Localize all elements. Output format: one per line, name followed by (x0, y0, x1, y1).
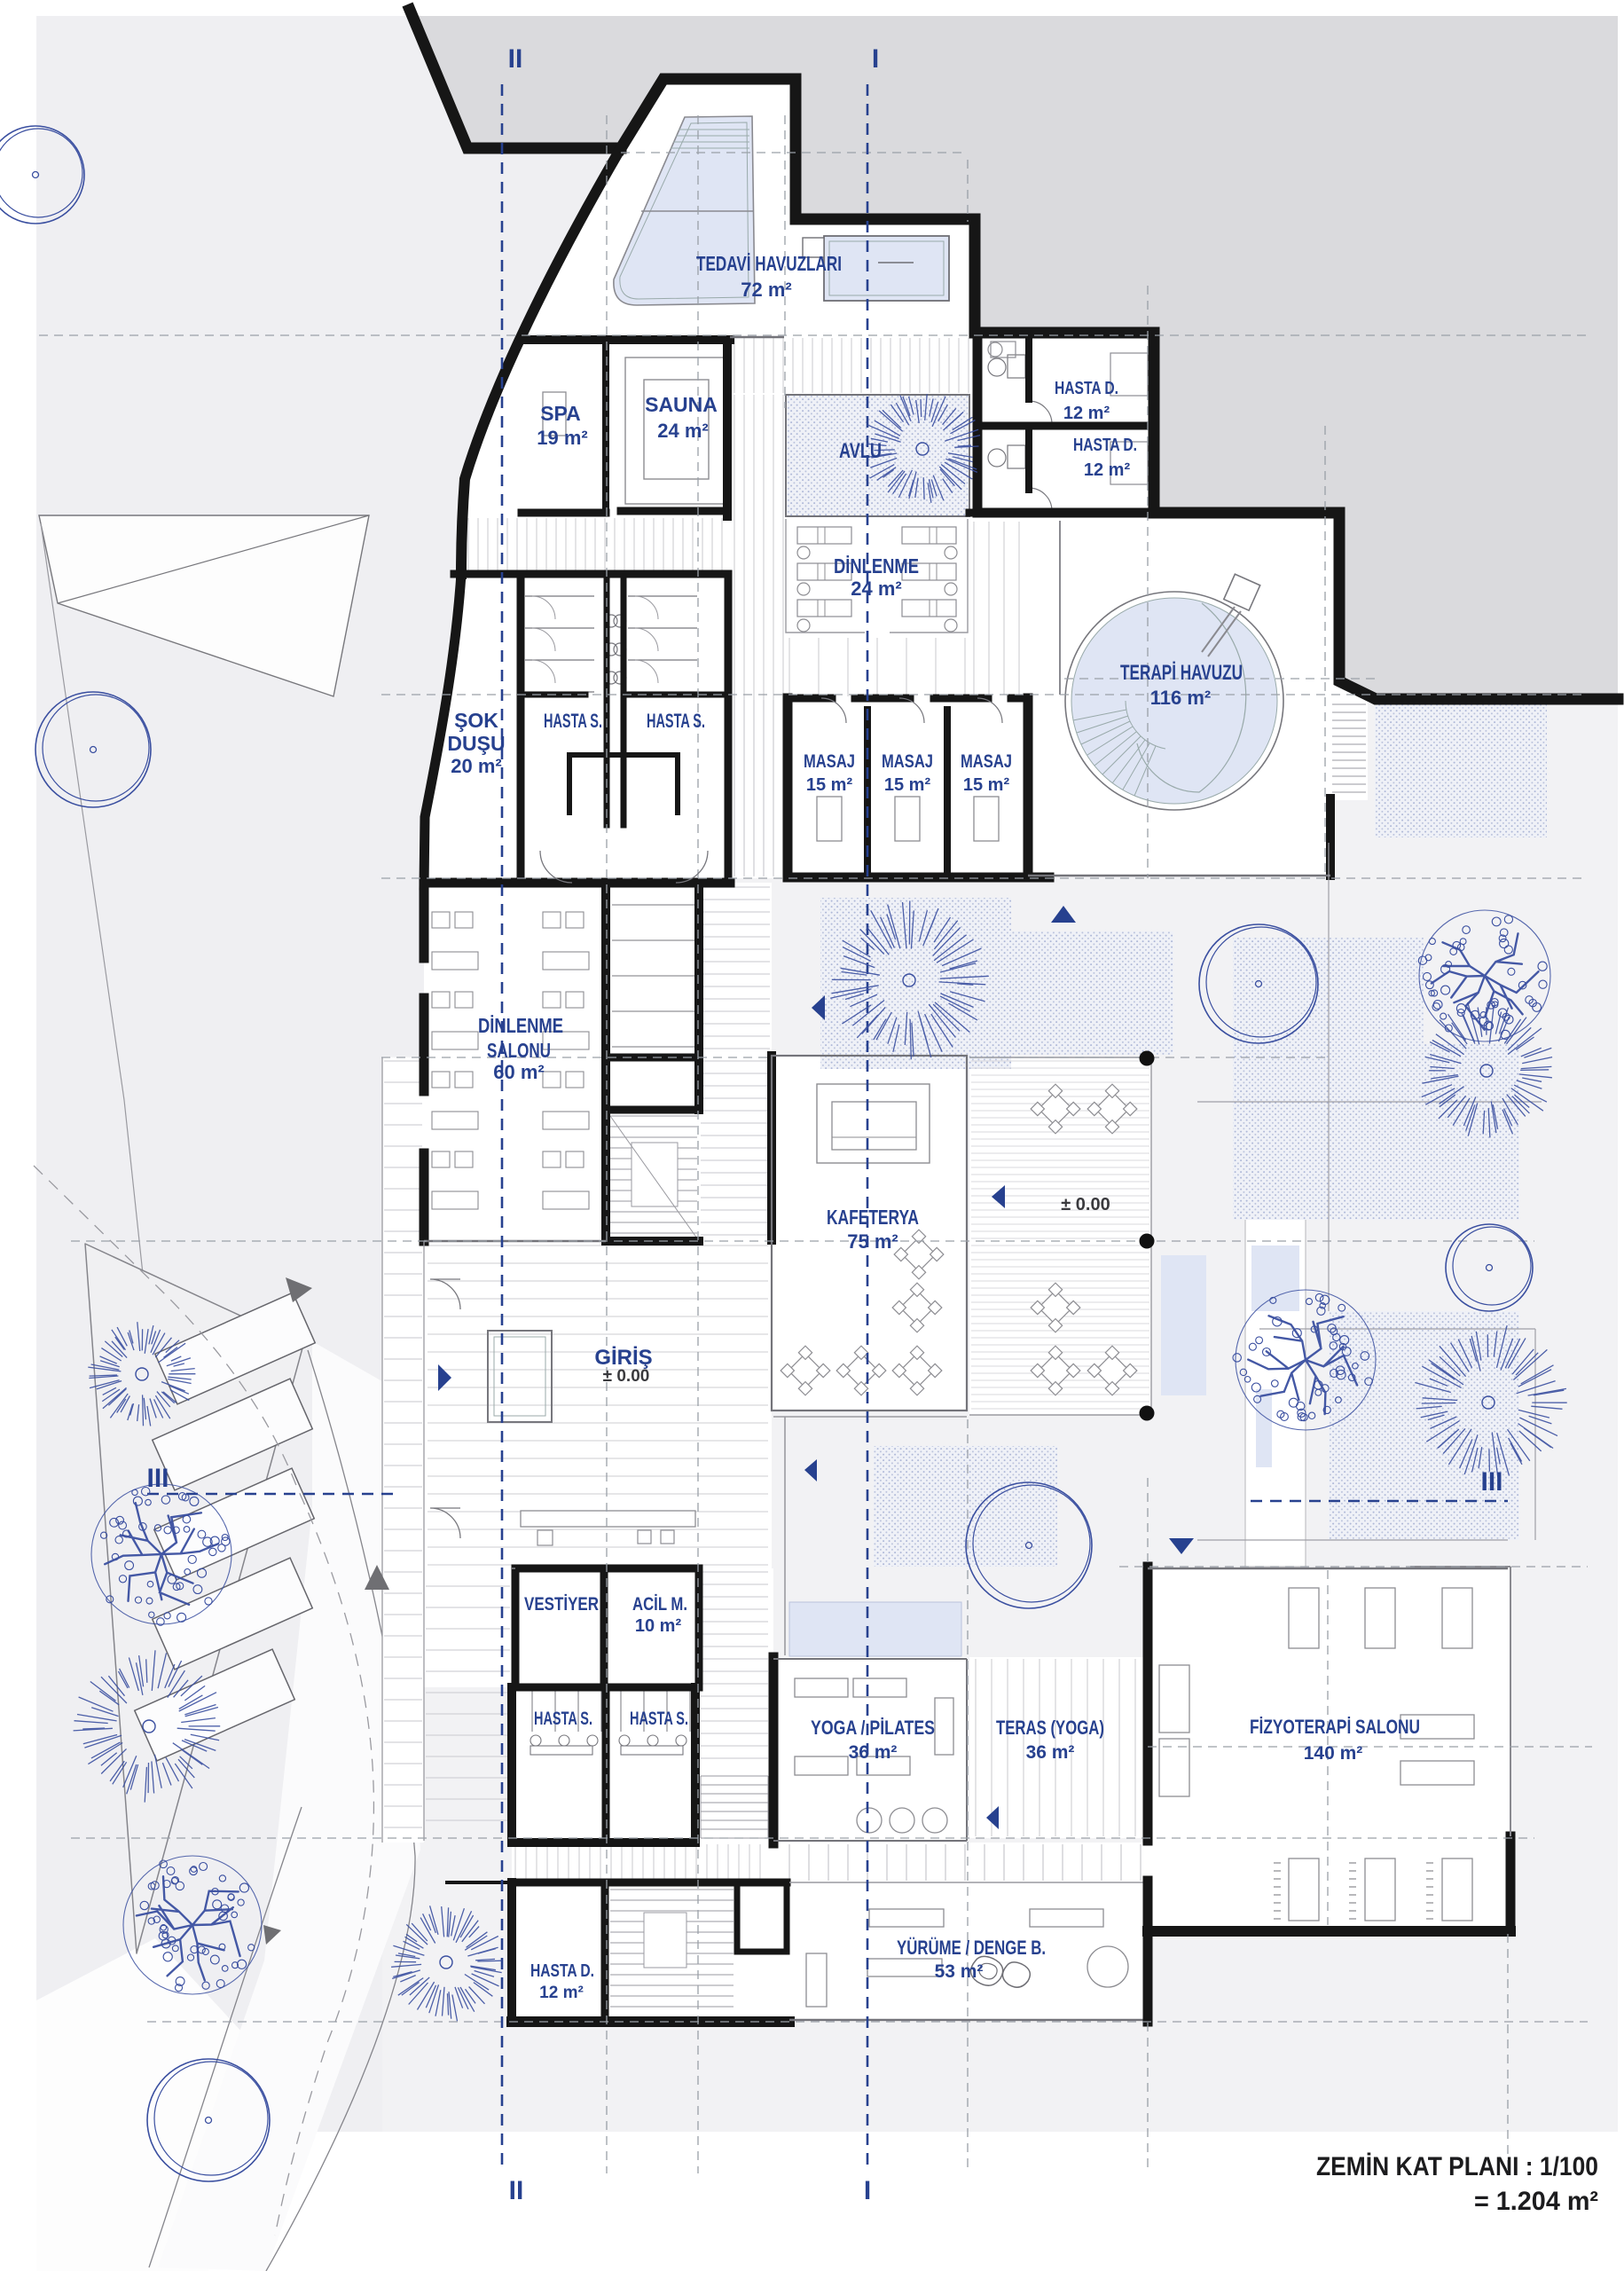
svg-text:TERAS (YOGA): TERAS (YOGA) (996, 1717, 1104, 1739)
svg-text:36 m²: 36 m² (1026, 1742, 1075, 1763)
svg-text:SALONU: SALONU (487, 1039, 551, 1062)
svg-text:HASTA D.: HASTA D. (530, 1961, 594, 1981)
svg-text:HASTA S.: HASTA S. (534, 1709, 592, 1729)
svg-text:15 m²: 15 m² (884, 775, 931, 795)
svg-text:53 m²: 53 m² (935, 1961, 984, 1982)
svg-text:15 m²: 15 m² (806, 775, 853, 795)
svg-text:GİRİŞ: GİRİŞ (594, 1346, 652, 1370)
svg-text:24 m²: 24 m² (851, 578, 901, 600)
svg-text:TERAPİ HAVUZU: TERAPİ HAVUZU (1120, 661, 1243, 685)
svg-text:SPA: SPA (540, 402, 581, 425)
svg-text:140 m²: 140 m² (1304, 1743, 1363, 1764)
svg-text:DUŞU: DUŞU (447, 732, 505, 755)
svg-text:20 m²: 20 m² (451, 755, 501, 777)
svg-text:HASTA S.: HASTA S. (647, 710, 705, 732)
svg-text:III: III (146, 1464, 169, 1493)
svg-text:II: II (509, 2176, 524, 2205)
svg-text:MASAJ: MASAJ (804, 751, 855, 772)
svg-text:72 m²: 72 m² (741, 279, 791, 301)
svg-text:15 m²: 15 m² (963, 775, 1010, 795)
svg-text:= 1.204 m²: = 1.204 m² (1474, 2187, 1598, 2216)
svg-text:YÜRÜME / DENGE B.: YÜRÜME / DENGE B. (897, 1937, 1046, 1959)
svg-text:II: II (508, 44, 523, 74)
svg-text:± 0.00: ± 0.00 (603, 1367, 650, 1386)
svg-text:12 m²: 12 m² (1063, 404, 1110, 423)
svg-text:MASAJ: MASAJ (961, 751, 1012, 772)
svg-text:DİNLENME: DİNLENME (478, 1014, 563, 1037)
svg-text:12 m²: 12 m² (1084, 460, 1131, 480)
svg-text:10 m²: 10 m² (635, 1616, 682, 1636)
svg-text:19 m²: 19 m² (537, 427, 587, 449)
svg-text:HASTA D.: HASTA D. (1073, 436, 1137, 455)
svg-text:12 m²: 12 m² (539, 1984, 584, 2002)
svg-text:60 m²: 60 m² (493, 1061, 544, 1083)
svg-text:MASAJ: MASAJ (882, 751, 933, 772)
svg-text:TEDAVİ HAVUZLARI: TEDAVİ HAVUZLARI (696, 252, 842, 275)
svg-text:HASTA S.: HASTA S. (630, 1709, 688, 1729)
svg-text:SAUNA: SAUNA (645, 393, 718, 416)
svg-text:FİZYOTERAPİ SALONU: FİZYOTERAPİ SALONU (1250, 1716, 1420, 1738)
svg-text:116 m²: 116 m² (1150, 687, 1212, 709)
svg-text:VESTİYER: VESTİYER (524, 1594, 599, 1615)
svg-text:ZEMİN KAT PLANI : 1/100: ZEMİN KAT PLANI : 1/100 (1316, 2152, 1598, 2181)
svg-text:± 0.00: ± 0.00 (1061, 1195, 1110, 1214)
svg-text:ACİL M.: ACİL M. (632, 1594, 687, 1615)
svg-text:I: I (872, 44, 879, 74)
svg-text:I: I (864, 2176, 871, 2205)
svg-text:AVLU: AVLU (839, 439, 882, 463)
svg-text:36 m²: 36 m² (849, 1742, 898, 1763)
svg-text:III: III (1480, 1467, 1502, 1497)
svg-text:HASTA D.: HASTA D. (1055, 379, 1118, 398)
svg-text:YOGA / PİLATES: YOGA / PİLATES (811, 1717, 935, 1739)
svg-text:75 m²: 75 m² (847, 1230, 898, 1253)
svg-text:DİNLENME: DİNLENME (834, 554, 919, 578)
svg-text:24 m²: 24 m² (657, 420, 708, 442)
svg-text:ŞOK: ŞOK (454, 709, 498, 732)
svg-text:HASTA S.: HASTA S. (544, 710, 602, 732)
svg-text:KAFETERYA: KAFETERYA (827, 1206, 919, 1229)
